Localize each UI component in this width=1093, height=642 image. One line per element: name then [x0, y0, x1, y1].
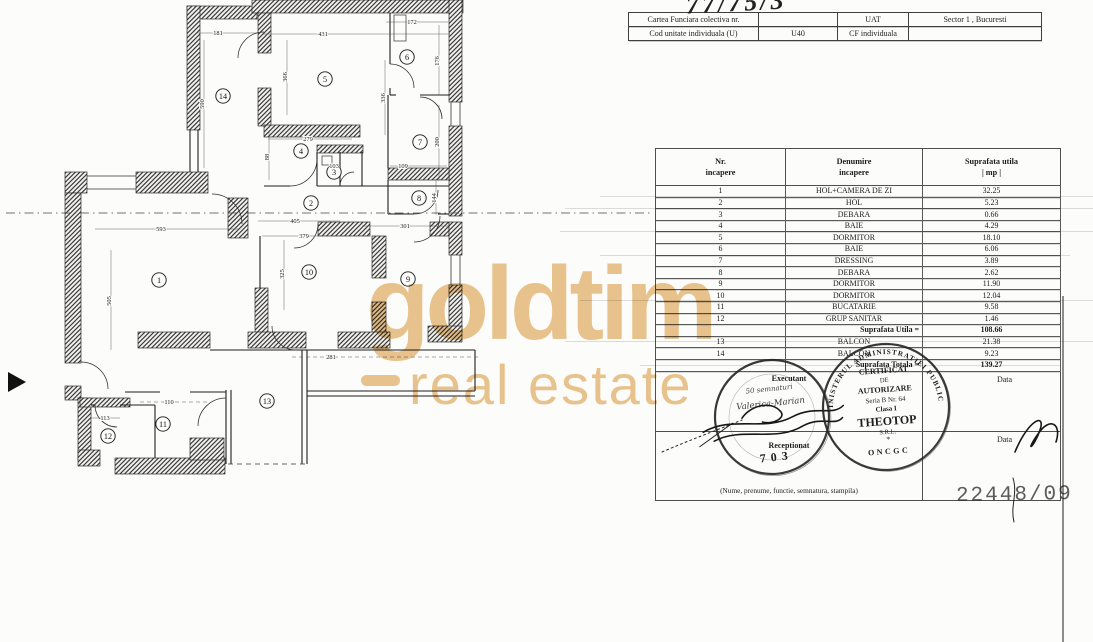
dimension-label: 88 — [264, 154, 271, 160]
table-cell: 6.06 — [923, 244, 1061, 256]
table-row: 3DEBARA0.66 — [656, 209, 1061, 221]
registration-number-stamp: 22448/09 — [956, 483, 1073, 508]
dimension-label: 110 — [164, 399, 173, 406]
table-cell: 0.66 — [923, 209, 1061, 221]
column-header: Nr.incapere — [656, 149, 786, 186]
room-number-label: 12 — [104, 432, 112, 441]
room-area-table: Nr.incapere Denumireincapere Suprafata u… — [655, 148, 1061, 501]
table-cell: DEBARA — [786, 267, 923, 279]
table-cell: BAIE — [786, 244, 923, 256]
table-row: 11BUCATARIE9.58 — [656, 302, 1061, 314]
room-number-label: 2 — [309, 199, 313, 208]
watermark-brand: goldtim — [366, 252, 713, 356]
table-cell: 9.23 — [923, 348, 1061, 360]
dimension-label: 113 — [100, 415, 109, 422]
room-number-label: 13 — [263, 397, 271, 406]
receptionat-label: Receptionat — [656, 441, 922, 450]
dimension-label: 405 — [290, 218, 300, 225]
receptionat-cell: Receptionat (Nume, prenume, functie, sem… — [656, 432, 923, 501]
header-cell: Sector 1 , Bucuresti — [909, 13, 1042, 27]
room-number-label: 10 — [305, 268, 313, 277]
header-cell: Cod unitate individuala (U) — [629, 27, 759, 41]
column-header: Denumireincapere — [786, 149, 923, 186]
table-row: 14BALCON9.23 — [656, 348, 1061, 360]
dimension-label: 279 — [303, 136, 313, 143]
table-cell: DRESSING — [786, 256, 923, 268]
table-cell: BALCON — [786, 337, 923, 349]
table-cell: DORMITOR — [786, 232, 923, 244]
watermark-dash-icon — [361, 375, 400, 386]
dimension-label: 181 — [213, 30, 223, 37]
dimension-label: 336 — [380, 93, 387, 103]
table-cell: 3.89 — [923, 256, 1061, 268]
table-cell: 18.10 — [923, 232, 1061, 244]
column-header: Suprafata utila| mp | — [923, 149, 1061, 186]
table-row: 6BAIE6.06 — [656, 244, 1061, 256]
data-cell-1: Data — [923, 372, 1061, 432]
table-cell: DEBARA — [786, 209, 923, 221]
table-row: 8DEBARA2.62 — [656, 267, 1061, 279]
table-cell: BALCON — [786, 348, 923, 360]
table-cell: 21.38 — [923, 337, 1061, 349]
table-cell: 5 — [656, 232, 786, 244]
room-number-label: 6 — [405, 53, 409, 62]
dimension-label: 103 — [329, 163, 339, 170]
table-row: 9DORMITOR11.90 — [656, 279, 1061, 291]
dimension-label: 431 — [318, 31, 328, 38]
table-cell: BUCATARIE — [786, 302, 923, 314]
dimension-label: 172 — [407, 19, 417, 26]
paper-edge-line — [1062, 296, 1064, 642]
header-cell: UAT — [838, 13, 909, 27]
room-number-label: 8 — [417, 194, 421, 203]
room-table-header: Nr.incapere Denumireincapere Suprafata u… — [656, 149, 1061, 186]
table-row: 13BALCON21.38 — [656, 337, 1061, 349]
scan-artifact — [565, 208, 1093, 209]
dimension-label: 325 — [279, 269, 286, 279]
scanned-floorplan-document: 1234567891011121314181431172590366336176… — [0, 0, 1093, 642]
table-row: 5DORMITOR18.10 — [656, 232, 1061, 244]
entrance-arrow-icon — [8, 372, 26, 392]
table-cell: 108.66 — [923, 325, 1061, 337]
room-number-label: 11 — [159, 420, 167, 429]
dimension-label: 590 — [199, 99, 206, 109]
table-cell: 9.58 — [923, 302, 1061, 314]
room-number-label: 7 — [418, 138, 422, 147]
header-cell — [909, 27, 1042, 41]
executant-cell: Executant — [656, 372, 923, 432]
dimension-label: 109 — [398, 163, 408, 170]
table-cell: DORMITOR — [786, 279, 923, 291]
header-cell: CF individuala — [838, 27, 909, 41]
table-row: Suprafata Utila =108.66 — [656, 325, 1061, 337]
room-table-footer: Executant Data Receptionat (Nume, prenum… — [656, 372, 1061, 501]
dimension-label: 144 — [431, 192, 438, 202]
signature-caption: (Nume, prenume, functie, semnatura, stam… — [656, 486, 922, 495]
dimension-label: 505 — [106, 296, 113, 306]
table-cell: 3 — [656, 209, 786, 221]
table-cell: 11.90 — [923, 279, 1061, 291]
header-cell: U40 — [759, 27, 838, 41]
table-row: 12GRUP SANITAR1.46 — [656, 314, 1061, 326]
dimension-label: 176 — [434, 56, 441, 66]
dimension-label: 366 — [282, 72, 289, 82]
room-number-label: 5 — [323, 75, 327, 84]
table-cell: 2.62 — [923, 267, 1061, 279]
scan-artifact — [560, 231, 1093, 232]
room-number-label: 14 — [219, 92, 227, 101]
dimension-label: 281 — [326, 354, 336, 361]
dimension-label: 301 — [400, 223, 410, 230]
room-number-label: 4 — [299, 147, 303, 156]
room-number-label: 1 — [157, 276, 161, 285]
dimension-label: 379 — [299, 233, 309, 240]
dimension-label: 593 — [156, 226, 166, 233]
room-table-body: 1HOL+CAMERA DE ZI32.252HOL5.233DEBARA0.6… — [656, 186, 1061, 372]
table-cell: Suprafata Utila = — [786, 325, 923, 337]
table-row: 7DRESSING3.89 — [656, 256, 1061, 268]
scan-artifact — [600, 196, 1093, 197]
watermark-tagline: real estate — [409, 357, 693, 413]
executant-label: Executant — [656, 374, 922, 383]
table-cell: GRUP SANITAR — [786, 314, 923, 326]
dimension-label: 200 — [434, 137, 441, 147]
scan-artifact — [640, 365, 1060, 366]
table-cell: 1.46 — [923, 314, 1061, 326]
